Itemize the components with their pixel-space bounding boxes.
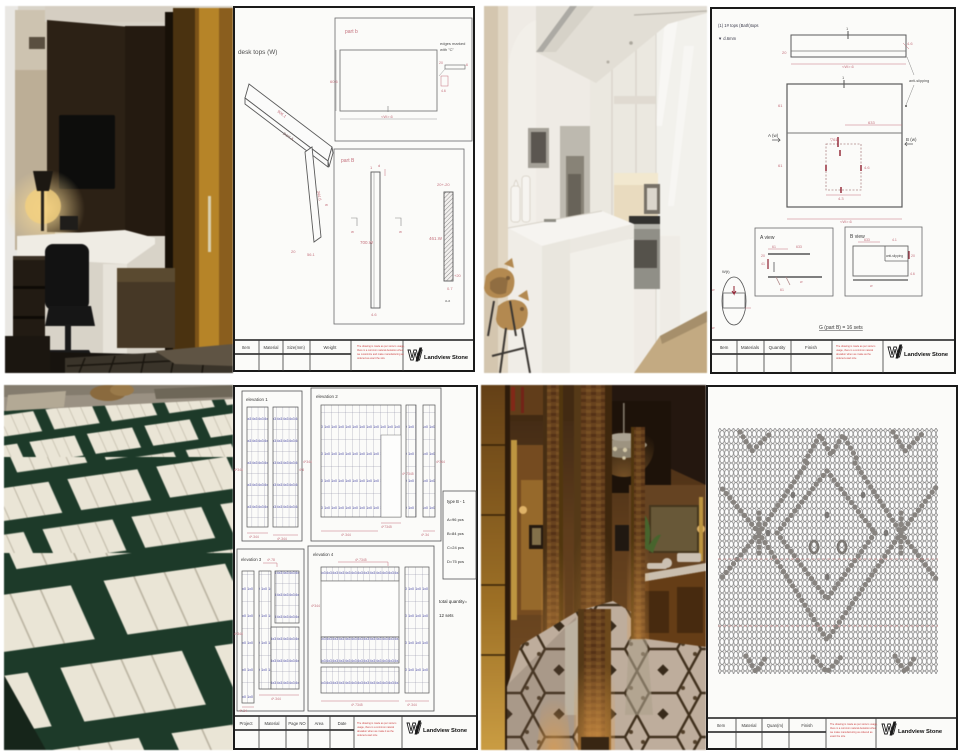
svg-text:Material: Material (264, 345, 279, 350)
svg-text:▽61: ▽61 (830, 137, 838, 142)
svg-text:Quan(m): Quan(m) (767, 723, 784, 728)
svg-text:4*344: 4*344 (234, 468, 243, 472)
svg-text:20: 20 (911, 254, 915, 258)
svg-text:ordered exact size: ordered exact size (357, 734, 378, 737)
svg-text:ordered as exact the size: ordered as exact the size (357, 357, 386, 360)
svg-text:Landview Stone: Landview Stone (904, 352, 949, 358)
svg-text:<W>.6: <W>.6 (842, 64, 855, 69)
svg-text:Date: Date (338, 721, 348, 726)
svg-text:Landview Stone: Landview Stone (424, 355, 469, 361)
svg-text:desk tops (W): desk tops (W) (238, 49, 277, 56)
svg-text:4*6: 4*6 (299, 468, 304, 472)
svg-text:elevation 1: elevation 1 (246, 397, 268, 402)
svg-text:Quantity: Quantity (769, 345, 787, 350)
svg-text:633: 633 (796, 245, 802, 249)
svg-text:4.3: 4.3 (838, 196, 844, 201)
svg-text:Landview Stone: Landview Stone (898, 729, 943, 735)
svg-text:Materials: Materials (741, 345, 760, 350)
svg-text:Project: Project (239, 721, 253, 726)
svg-text:+20: +20 (454, 273, 462, 278)
svg-text:4*344: 4*344 (436, 460, 445, 464)
svg-text:4*.7345: 4*.7345 (351, 703, 363, 707)
svg-text:4.6: 4.6 (910, 272, 915, 276)
svg-text:there is a common natural devi: there is a common natural deviation when (830, 727, 877, 730)
svg-text:4*344: 4*344 (311, 604, 320, 608)
svg-text:The drawing is made as per sto: The drawing is made as per stone's usage… (830, 723, 878, 726)
svg-text:The drawing is made as per sto: The drawing is made as per stone's (836, 345, 876, 348)
svg-text:700.W: 700.W (360, 240, 374, 245)
svg-text:The drawing is made as per sto: The drawing is made as per stone's (357, 722, 397, 725)
svg-text:4*344: 4*344 (303, 460, 312, 464)
svg-text:B=84 pcs: B=84 pcs (447, 531, 464, 536)
svg-text:4*.7345: 4*.7345 (402, 472, 414, 476)
svg-text:Page NO: Page NO (288, 721, 306, 726)
svg-text:4.6: 4.6 (441, 89, 446, 93)
svg-text:exact the size: exact the size (830, 735, 846, 738)
svg-text:part B: part B (341, 158, 355, 164)
svg-text:part b: part b (345, 29, 358, 35)
svg-text:20: 20 (761, 254, 765, 258)
svg-text:12 sets: 12 sets (439, 613, 454, 618)
svg-text:61: 61 (780, 288, 784, 292)
svg-text:ordered exact size: ordered exact size (836, 357, 857, 360)
svg-text:deviation when we make as the: deviation when we make as the (836, 353, 871, 356)
svg-text:61: 61 (778, 103, 783, 108)
svg-text:633: 633 (868, 120, 875, 125)
svg-text:w: w (325, 202, 328, 207)
svg-text:<W>.6: <W>.6 (381, 114, 394, 119)
svg-text:41: 41 (761, 262, 765, 266)
svg-text:a-a: a-a (445, 299, 450, 303)
svg-text:W(t): W(t) (722, 269, 730, 274)
svg-text:A view: A view (760, 235, 775, 241)
svg-text:▼ d.6mm: ▼ d.6mm (718, 36, 737, 41)
svg-text:Material: Material (265, 721, 280, 726)
svg-text:20: 20 (439, 61, 443, 65)
svg-text:usage, there is a common natur: usage, there is a common natural (357, 726, 395, 729)
svg-text:Item: Item (717, 723, 726, 728)
svg-text:(1) 1# tops (Bath)tops: (1) 1# tops (Bath)tops (718, 23, 759, 28)
svg-text:4.6: 4.6 (371, 312, 377, 317)
svg-text:w: w (399, 229, 402, 234)
svg-text:4*.78: 4*.78 (267, 558, 275, 562)
svg-text:A=96 pcs: A=96 pcs (447, 517, 464, 522)
svg-text:w: w (351, 229, 354, 234)
svg-text:60.6: 60.6 (330, 79, 339, 84)
svg-text:D=75 pcs: D=75 pcs (447, 559, 464, 564)
svg-text:G (part B) = 16 sets: G (part B) = 16 sets (819, 325, 863, 331)
svg-text:4*.344: 4*.344 (249, 535, 259, 539)
svg-text:4.6: 4.6 (864, 165, 870, 170)
svg-text:d: d (378, 163, 380, 168)
svg-text:Landview Stone: Landview Stone (423, 728, 468, 734)
svg-text:20: 20 (291, 249, 296, 254)
svg-text:B (w): B (w) (906, 137, 917, 142)
svg-text:Item: Item (720, 345, 729, 350)
svg-text:56.1: 56.1 (307, 252, 316, 257)
svg-text:61: 61 (772, 245, 776, 249)
svg-text:4*.34: 4*.34 (239, 709, 247, 713)
svg-text:61: 61 (778, 163, 783, 168)
svg-text:20+-20: 20+-20 (437, 182, 450, 187)
svg-text:Item: Item (242, 345, 251, 350)
svg-text:total quantity=: total quantity= (439, 599, 468, 604)
svg-text:633: 633 (864, 238, 870, 242)
svg-text:deviation when we make it as t: deviation when we make it as the (357, 730, 394, 733)
svg-text:20: 20 (782, 50, 787, 55)
svg-text:Weight: Weight (324, 345, 338, 350)
svg-text:A (w): A (w) (768, 133, 779, 138)
svg-text:Finish: Finish (805, 345, 818, 350)
svg-text:elevation 4: elevation 4 (313, 552, 334, 557)
svg-text:Size(mm): Size(mm) (287, 345, 306, 350)
svg-text:Area: Area (315, 721, 325, 726)
svg-text:anti-slipping: anti-slipping (909, 79, 929, 83)
svg-text:elevation 3: elevation 3 (241, 557, 262, 562)
svg-text:461.W: 461.W (429, 236, 443, 241)
svg-text:4*344: 4*344 (234, 632, 243, 636)
svg-text:edges marked: edges marked (440, 41, 465, 46)
svg-text:The drawing is made as per sto: The drawing is made as per stone's usage… (357, 345, 405, 348)
svg-text:<W>.6: <W>.6 (840, 219, 853, 224)
svg-text:.6: .6 (465, 63, 468, 67)
svg-text:C=24 pcs: C=24 pcs (447, 545, 464, 550)
svg-text:0.7: 0.7 (447, 286, 453, 291)
svg-text:4*.34: 4*.34 (421, 533, 429, 537)
svg-text:Finish: Finish (801, 723, 813, 728)
svg-text:usage, there is a common natur: usage, there is a common natural (836, 349, 874, 352)
svg-text:4*.344: 4*.344 (341, 533, 351, 537)
svg-text:elevation 2: elevation 2 (316, 394, 338, 399)
svg-text:4*7345: 4*7345 (381, 525, 392, 529)
svg-text:B view: B view (850, 234, 865, 240)
svg-text:4*.7345: 4*.7345 (355, 558, 367, 562)
svg-text:with "C": with "C" (440, 47, 455, 52)
svg-text:anti-slipping: anti-slipping (886, 254, 903, 258)
svg-text:4.1: 4.1 (892, 238, 897, 242)
svg-text:4.6: 4.6 (907, 41, 913, 46)
svg-text:4*.344: 4*.344 (407, 703, 417, 707)
svg-text:we make manufacturing as order: we make manufacturing as ordered as (830, 731, 873, 734)
svg-text:there is a common natural devi: there is a common natural deviation when (357, 349, 404, 352)
svg-text:4*.344: 4*.344 (277, 537, 287, 541)
svg-text:4*.344: 4*.344 (271, 697, 281, 701)
svg-text:type B - 1: type B - 1 (447, 499, 466, 504)
svg-text:we customize and make manufact: we customize and make manufacturing as (357, 353, 404, 356)
svg-text:Material: Material (742, 723, 757, 728)
